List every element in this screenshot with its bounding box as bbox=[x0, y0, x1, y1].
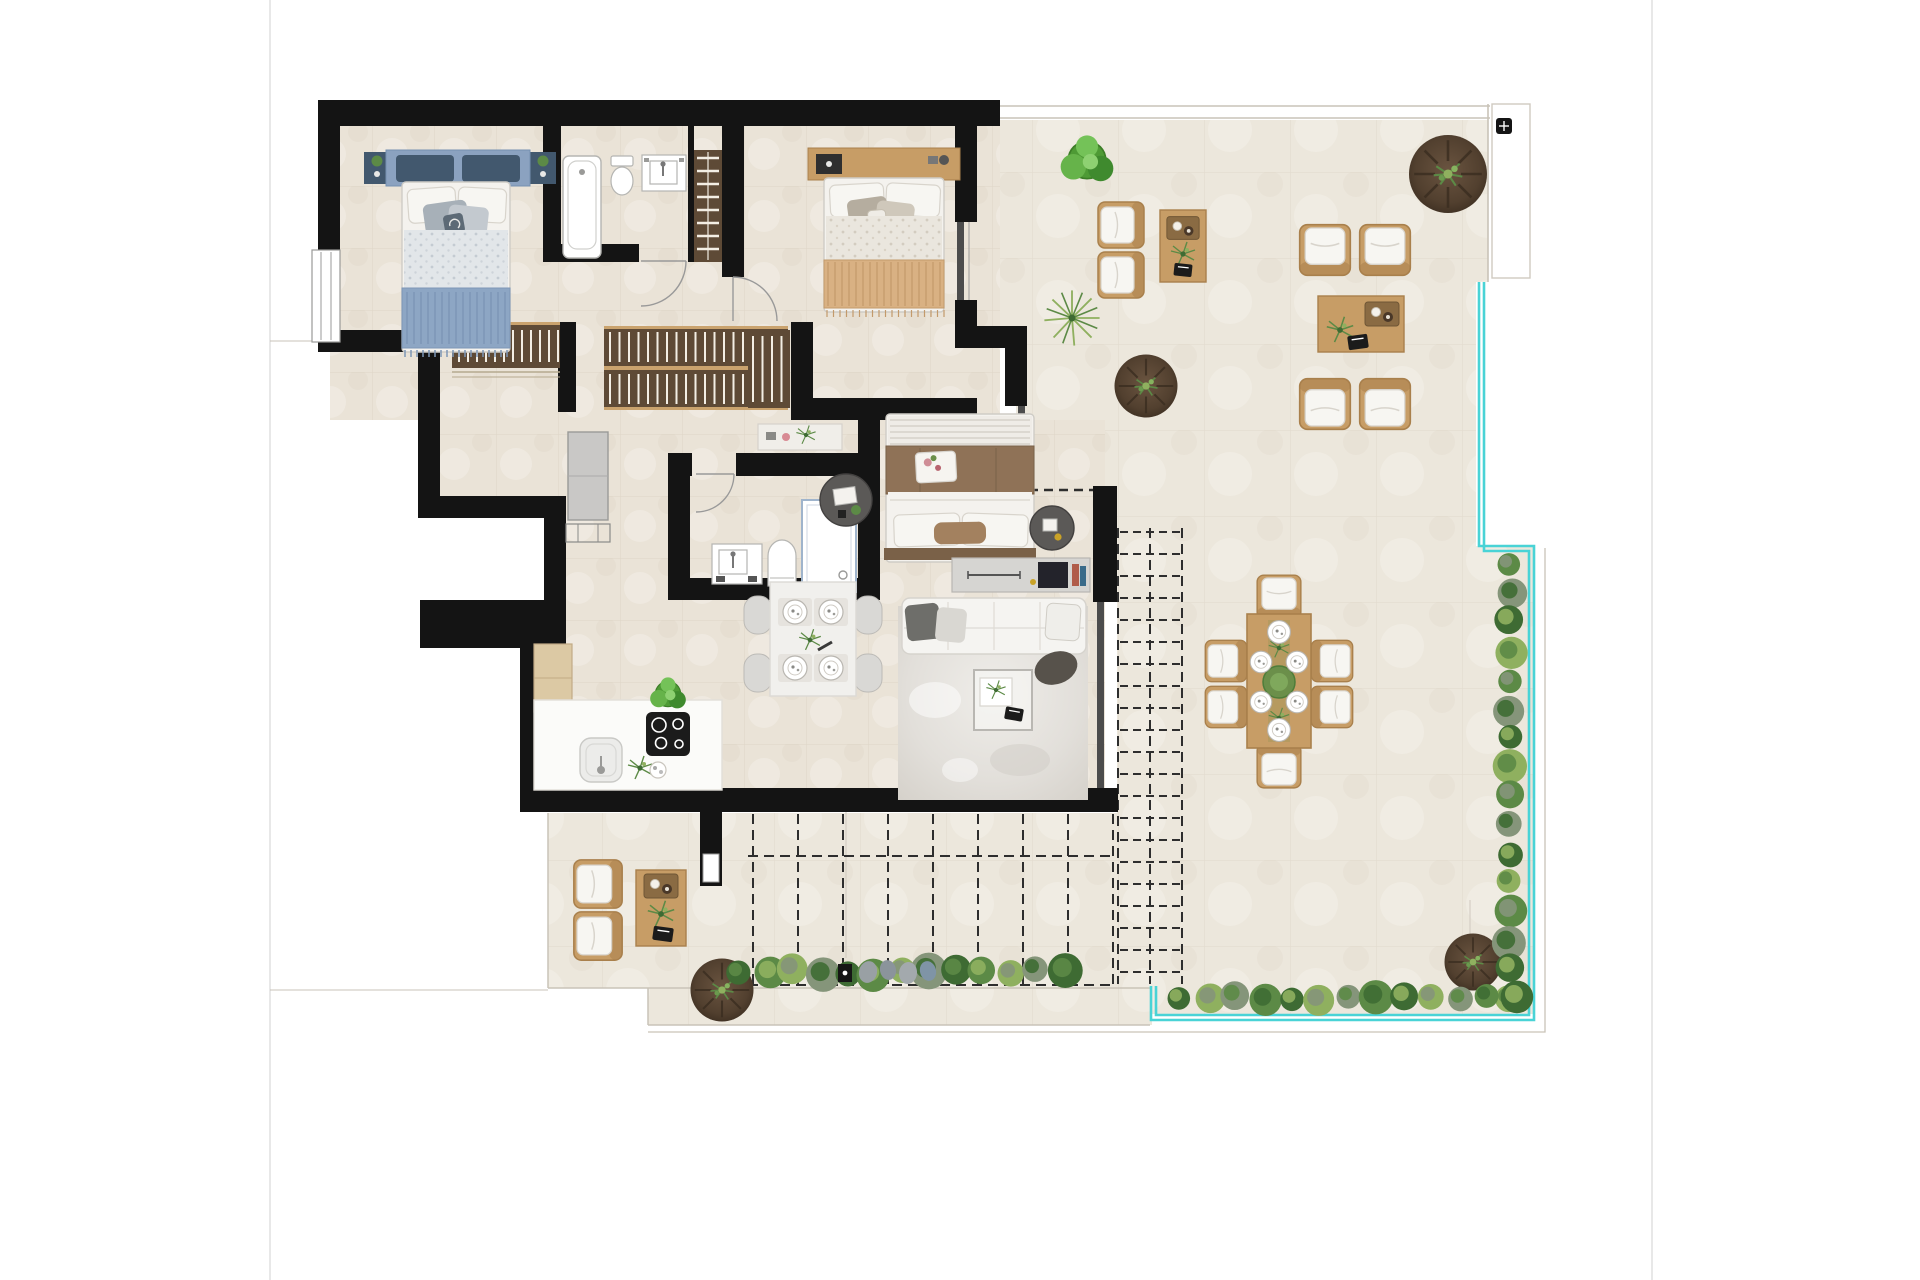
induction-hob bbox=[646, 712, 690, 756]
round-planter-ne bbox=[1409, 135, 1487, 213]
wall-bath2-top-left bbox=[668, 453, 692, 476]
plant-highlight bbox=[1421, 987, 1435, 1001]
plant-highlight bbox=[781, 957, 798, 974]
outdoor-dining-chair[interactable] bbox=[1205, 686, 1246, 727]
coffee-table[interactable] bbox=[974, 670, 1032, 730]
plant-highlight bbox=[1363, 985, 1382, 1004]
wall-kitchen-nw bbox=[544, 518, 566, 608]
wall-west-upper bbox=[318, 100, 340, 252]
lounge-chair[interactable] bbox=[1098, 202, 1144, 248]
outdoor-dining-chair[interactable] bbox=[1257, 744, 1301, 788]
outdoor-dining-chair[interactable] bbox=[1311, 686, 1352, 727]
bed-tan bbox=[824, 178, 944, 317]
media-console bbox=[952, 558, 1090, 592]
wall-closet-pillar bbox=[558, 322, 576, 412]
plant-highlight bbox=[729, 963, 742, 976]
wall-utility bbox=[418, 496, 566, 518]
vent-icon bbox=[1496, 118, 1512, 134]
plant-highlight bbox=[1025, 959, 1039, 973]
plant-highlight bbox=[1499, 784, 1514, 799]
lounge-chair[interactable] bbox=[1098, 252, 1144, 298]
plant-highlight bbox=[1224, 985, 1240, 1001]
wall-step-east bbox=[955, 326, 1027, 348]
plant-highlight bbox=[1451, 989, 1465, 1003]
sink-vanity bbox=[642, 155, 686, 191]
dining-chair[interactable] bbox=[854, 596, 882, 634]
dining-chair[interactable] bbox=[744, 654, 772, 692]
plant-highlight bbox=[1254, 988, 1272, 1006]
plant-highlight bbox=[1053, 958, 1072, 977]
plant-highlight bbox=[971, 960, 986, 975]
slider-bedroom-tan bbox=[957, 222, 964, 300]
fruit-dish bbox=[650, 762, 666, 778]
nightstand-round-right bbox=[1030, 506, 1074, 550]
wall-living-east bbox=[1093, 486, 1117, 602]
wall-bath1-east bbox=[688, 126, 694, 262]
living-room bbox=[898, 598, 1088, 800]
wall-terrace-jog bbox=[1005, 348, 1027, 406]
nightstand-round-left bbox=[820, 474, 872, 526]
plant-highlight bbox=[1497, 754, 1516, 773]
plant-highlight bbox=[1393, 986, 1408, 1001]
plant-highlight bbox=[1283, 990, 1296, 1003]
armchair[interactable] bbox=[1360, 225, 1411, 276]
plant-highlight bbox=[1170, 989, 1182, 1001]
closet-bedroom-tan bbox=[748, 330, 790, 408]
outdoor-dining-chair[interactable] bbox=[1257, 575, 1301, 619]
slider-living bbox=[1097, 602, 1104, 788]
lounge-chair[interactable] bbox=[574, 860, 622, 908]
blanket-master bbox=[886, 446, 1034, 494]
plant-highlight bbox=[1501, 582, 1517, 598]
plant-highlight bbox=[1477, 986, 1490, 999]
counter bbox=[534, 700, 722, 790]
outdoor-dining-chair[interactable] bbox=[1205, 640, 1246, 681]
coffee-table-terrace[interactable] bbox=[1318, 296, 1404, 352]
plant-highlight bbox=[1000, 963, 1015, 978]
plant-highlight bbox=[1307, 989, 1324, 1006]
duvet-tan bbox=[826, 216, 942, 264]
wall-north bbox=[318, 100, 1000, 126]
door-terrace-sw bbox=[703, 854, 719, 882]
plant-highlight bbox=[1499, 957, 1515, 973]
wall-master-link bbox=[858, 420, 880, 453]
sofa[interactable] bbox=[902, 598, 1086, 654]
side-table[interactable] bbox=[1160, 210, 1206, 282]
sink-vanity-2 bbox=[712, 544, 762, 584]
toilet bbox=[611, 156, 633, 195]
plant-highlight bbox=[945, 958, 961, 974]
plant-highlight bbox=[1199, 987, 1215, 1003]
wall-west-mid bbox=[418, 352, 440, 518]
duvet-blue bbox=[404, 230, 508, 292]
bed-blue bbox=[402, 182, 510, 357]
tv-box bbox=[1038, 562, 1068, 588]
bedroom-tan-furniture bbox=[808, 148, 960, 317]
wall-bath2-top bbox=[736, 453, 880, 476]
lounge-chair[interactable] bbox=[574, 912, 622, 960]
plant-highlight bbox=[811, 962, 830, 981]
breakfast-tray bbox=[915, 451, 957, 483]
plant-highlight bbox=[1497, 700, 1514, 717]
plant-highlight bbox=[1499, 899, 1517, 917]
bed-master bbox=[884, 414, 1036, 562]
plant-highlight bbox=[1499, 871, 1512, 884]
wall-bath1-west bbox=[543, 126, 561, 262]
plant-highlight bbox=[1505, 985, 1523, 1003]
kitchen-sink bbox=[580, 738, 622, 782]
plant-highlight bbox=[1500, 555, 1512, 567]
floorplan-drawing bbox=[0, 0, 1920, 1280]
floorplan-page bbox=[0, 0, 1920, 1280]
plant-highlight bbox=[1501, 672, 1514, 685]
armchair[interactable] bbox=[1300, 225, 1351, 276]
wall-bed1-west bbox=[722, 126, 744, 277]
plant-highlight bbox=[1499, 814, 1513, 828]
corridor-console bbox=[758, 424, 842, 450]
side-table-sw[interactable] bbox=[636, 870, 686, 946]
plant-highlight bbox=[1500, 641, 1518, 659]
dining-chair[interactable] bbox=[744, 596, 772, 634]
plant-highlight bbox=[1497, 931, 1516, 950]
plant-highlight bbox=[1501, 727, 1514, 740]
plant-highlight bbox=[1501, 845, 1515, 859]
toilet-2 bbox=[768, 540, 796, 586]
plant-highlight bbox=[1498, 609, 1514, 625]
plant-highlight bbox=[1339, 987, 1352, 1000]
armchair[interactable] bbox=[1360, 379, 1411, 430]
round-planter bbox=[1115, 355, 1178, 418]
dining-chair[interactable] bbox=[854, 654, 882, 692]
wall-pier-west bbox=[420, 600, 566, 648]
plant-highlight bbox=[759, 961, 776, 978]
window-bedroom-blue bbox=[312, 250, 340, 342]
wardrobe-vertical bbox=[694, 150, 722, 262]
outdoor-dining-chair[interactable] bbox=[1311, 640, 1352, 681]
armchair[interactable] bbox=[1300, 379, 1351, 430]
